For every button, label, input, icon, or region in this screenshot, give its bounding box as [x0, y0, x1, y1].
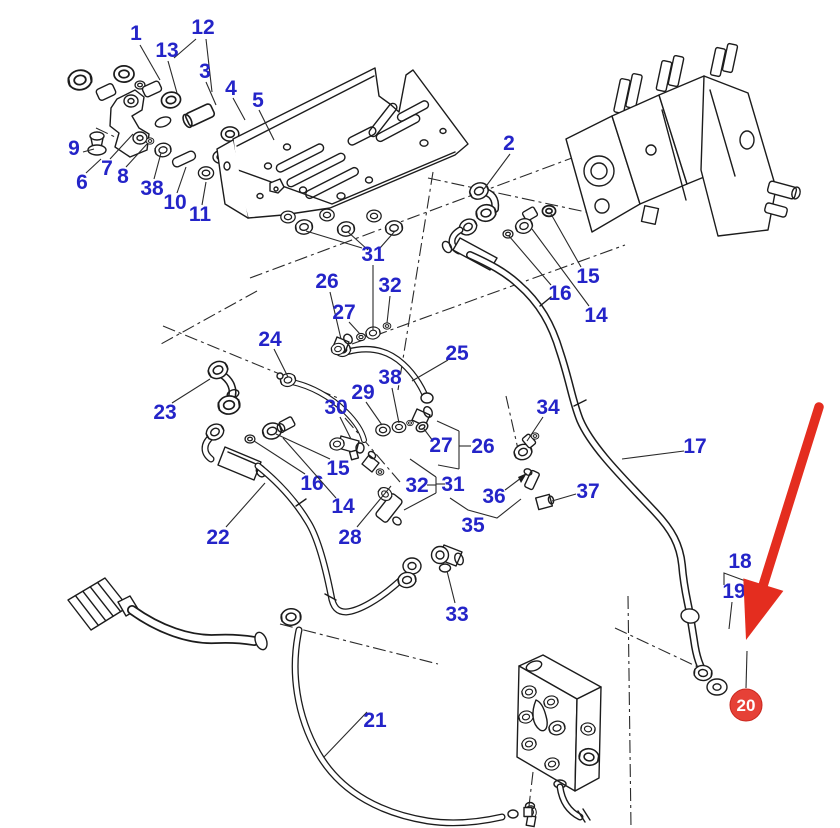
part-label-6: 6 — [76, 171, 88, 194]
leader-line-25 — [412, 360, 448, 381]
leader-line-36 — [505, 478, 521, 490]
leader-line-17 — [622, 451, 684, 459]
part-label-37: 37 — [576, 480, 599, 503]
part-label-32b: 32 — [405, 474, 428, 497]
part-label-5: 5 — [252, 89, 264, 112]
part-label-28: 28 — [338, 526, 362, 549]
leader-line-37 — [552, 494, 576, 501]
part-label-13: 13 — [155, 39, 178, 62]
part-label-32a: 32 — [378, 274, 401, 297]
part-label-25: 25 — [445, 342, 469, 365]
part-label-33: 33 — [445, 603, 468, 626]
part-label-17: 17 — [683, 435, 706, 458]
fitting-cluster-top-left — [67, 66, 239, 179]
part-label-34: 34 — [536, 396, 560, 419]
part-label-31b: 31 — [441, 473, 465, 496]
leader-line-31a — [306, 231, 362, 248]
banjo-33 — [432, 545, 465, 572]
part-label-16a: 16 — [548, 282, 571, 305]
part-label-21: 21 — [363, 709, 387, 732]
leader-line-11 — [202, 182, 206, 205]
leader-line-38a — [154, 153, 161, 179]
diagram-canvas: 1121334597863810112151614262731322524382… — [0, 0, 840, 828]
leader-line-4 — [233, 98, 245, 120]
part-label-4: 4 — [225, 77, 237, 100]
highlight-badge-text: 20 — [737, 696, 756, 715]
part-label-31a: 31 — [361, 243, 385, 266]
part-label-7: 7 — [101, 157, 113, 180]
part-label-14a: 14 — [584, 304, 608, 327]
part-label-27a: 27 — [332, 301, 355, 324]
part-label-16b: 16 — [300, 472, 323, 495]
leader-line-2 — [484, 154, 510, 189]
leader-line-22 — [226, 483, 265, 527]
exploded-parts-diagram: 1121334597863810112151614262731322524382… — [0, 0, 840, 828]
part-label-14b: 14 — [331, 495, 355, 518]
adapter-trio-near-valve — [503, 206, 556, 238]
part-label-38b: 38 — [378, 366, 402, 389]
leader-line-19 — [729, 602, 732, 629]
part-label-2: 2 — [503, 132, 515, 155]
highlight-badge: 20 — [730, 651, 762, 721]
part-label-12: 12 — [191, 16, 214, 39]
part-label-26b: 26 — [471, 435, 494, 458]
part-label-30: 30 — [324, 396, 347, 419]
red-highlight-arrow — [743, 407, 819, 640]
fitting-37 — [536, 494, 555, 509]
part-label-15b: 15 — [326, 457, 350, 480]
elbow-23 — [206, 358, 241, 415]
part-label-11: 11 — [189, 203, 212, 226]
leader-line-26b — [437, 421, 459, 431]
leader-line-15a — [551, 214, 581, 267]
control-valve-assembly — [566, 43, 801, 236]
leader-line-26b — [438, 465, 459, 469]
part-label-35: 35 — [461, 514, 485, 537]
part-label-18: 18 — [728, 550, 752, 573]
pipe-25 — [330, 323, 433, 403]
part-label-24: 24 — [258, 328, 282, 351]
part-label-36: 36 — [482, 485, 505, 508]
part-label-1: 1 — [130, 22, 142, 45]
fitting-36 — [518, 468, 540, 490]
fitting-34 — [512, 433, 539, 462]
pipe-21 — [295, 630, 537, 827]
part-label-26a: 26 — [315, 270, 338, 293]
leader-line-23 — [172, 379, 210, 403]
leader-line-13 — [168, 61, 177, 93]
part-label-8: 8 — [117, 165, 129, 188]
leader-line-6 — [86, 159, 101, 173]
hose-bottom-left — [68, 578, 302, 651]
part-label-29: 29 — [351, 381, 374, 404]
part-label-9: 9 — [68, 137, 80, 160]
leader-line-33 — [447, 571, 455, 603]
part-label-19: 19 — [722, 580, 745, 603]
leader-line-10 — [177, 167, 186, 193]
part-label-3: 3 — [199, 60, 211, 83]
leader-line-15b — [276, 434, 330, 459]
elbow-fitting-2 — [467, 180, 497, 223]
leader-line-38b — [392, 388, 399, 423]
leader-line-21 — [324, 712, 367, 757]
leader-line-32a — [387, 296, 390, 323]
part-label-22: 22 — [206, 526, 229, 549]
part-label-38a: 38 — [140, 177, 164, 200]
part-label-27b: 27 — [429, 434, 452, 457]
part-label-23: 23 — [153, 401, 176, 424]
leader-line-29 — [366, 402, 382, 425]
part-label-10: 10 — [163, 191, 186, 214]
part-label-15a: 15 — [576, 265, 600, 288]
